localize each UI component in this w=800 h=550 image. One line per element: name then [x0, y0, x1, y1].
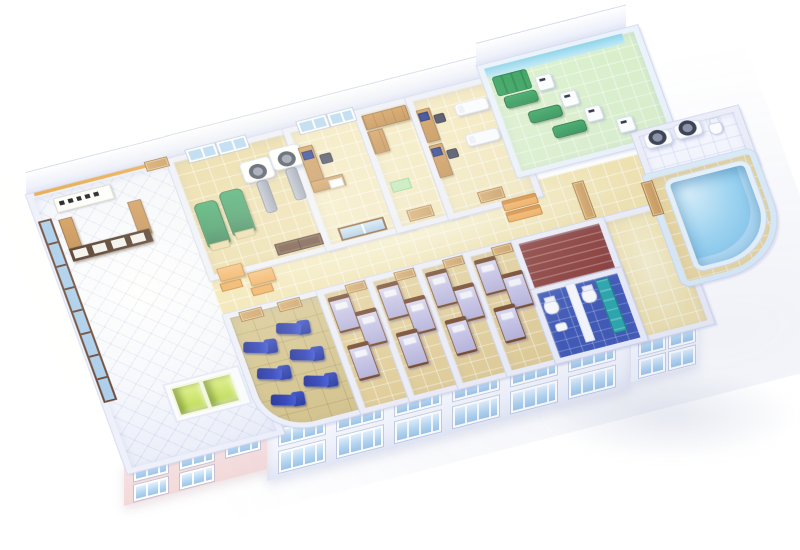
iv-recliner-chair: [303, 372, 337, 389]
iv-recliner-chair: [257, 365, 291, 382]
iv-recliner-chair: [290, 346, 324, 363]
iv-recliner-chair: [271, 391, 305, 408]
hospital-floorplan-scene: [0, 0, 800, 550]
iv-recliner-chair: [276, 320, 310, 337]
iv-recliner-chair: [243, 339, 277, 356]
